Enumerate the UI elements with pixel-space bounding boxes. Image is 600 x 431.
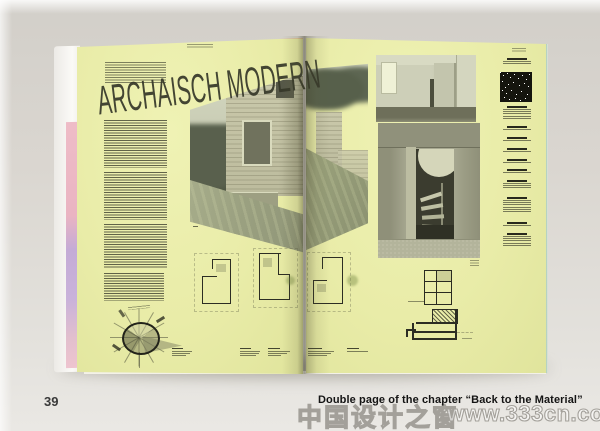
caption-block-2 <box>240 348 260 357</box>
dot-pattern <box>500 72 501 73</box>
info-entry-photos <box>501 106 533 120</box>
section-drawing <box>406 305 464 342</box>
floor-plan-1 <box>200 258 232 306</box>
floor-plan-3 <box>312 256 344 306</box>
elevation-drawing <box>424 270 452 305</box>
dark-slot <box>430 79 434 109</box>
info-entry <box>501 197 533 213</box>
info-entry <box>501 137 533 142</box>
body-paragraph-4 <box>104 273 164 301</box>
body-paragraph-1 <box>104 120 167 168</box>
tree-symbol <box>347 275 358 286</box>
stair-step <box>421 203 443 210</box>
arched-soffit <box>418 149 454 177</box>
compass-ring <box>122 322 160 355</box>
lintel <box>378 123 480 148</box>
info-entry <box>501 233 533 247</box>
photo-caption: Double page of the chapter “Back to the … <box>318 394 583 406</box>
tree-symbol <box>286 276 295 285</box>
info-entry <box>501 222 533 227</box>
site-dot-map <box>500 72 532 102</box>
body-paragraph-3 <box>104 224 167 269</box>
book-photo-backdrop: ARCHAISCH MODERN <box>0 0 600 431</box>
page-edges-pink-lavender <box>66 122 77 368</box>
corridor <box>434 63 456 109</box>
stair-step <box>420 192 442 202</box>
doorway-opening <box>416 149 454 239</box>
running-header <box>187 44 213 49</box>
interior-photo-window <box>376 55 476 122</box>
window <box>381 62 397 94</box>
caption-block-1 <box>172 348 192 357</box>
scale-mark <box>462 338 472 339</box>
page-marker <box>512 48 526 52</box>
info-entry <box>501 180 533 190</box>
floor <box>376 107 476 122</box>
caption-block-4 <box>308 348 334 357</box>
body-paragraph-2 <box>104 172 167 220</box>
interior-photo-stair <box>378 123 480 258</box>
info-entry <box>501 159 533 164</box>
photo-credit-marks <box>470 260 479 267</box>
info-entry <box>501 58 533 65</box>
info-entry <box>501 169 533 174</box>
info-entry <box>501 148 533 153</box>
ground-line <box>408 301 424 302</box>
caption-block-3 <box>268 348 290 357</box>
photo-credit-mark <box>193 226 198 227</box>
caption-block-5 <box>347 348 369 353</box>
terrazzo-floor <box>378 239 480 258</box>
jamb-highlight <box>406 147 416 239</box>
info-entry <box>501 126 533 131</box>
stair-shadow <box>416 225 454 239</box>
page-number: 39 <box>44 394 58 409</box>
